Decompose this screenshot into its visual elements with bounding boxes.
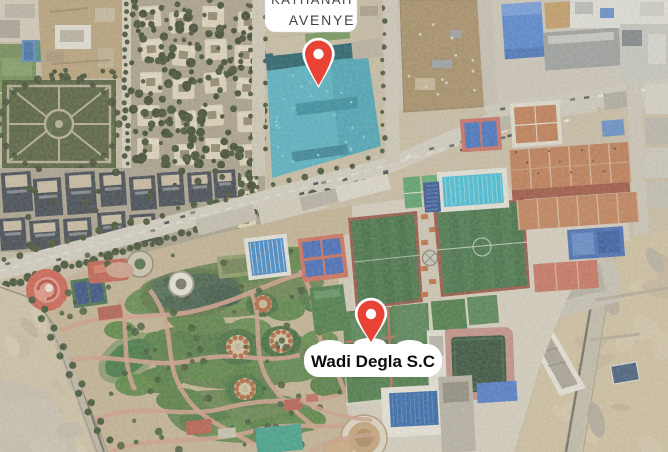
svg-text:KATHANAH: KATHANAH <box>271 0 353 7</box>
svg-text:Wadi Degla S.C: Wadi Degla S.C <box>311 352 435 371</box>
svg-text:AVENYE: AVENYE <box>289 12 356 28</box>
